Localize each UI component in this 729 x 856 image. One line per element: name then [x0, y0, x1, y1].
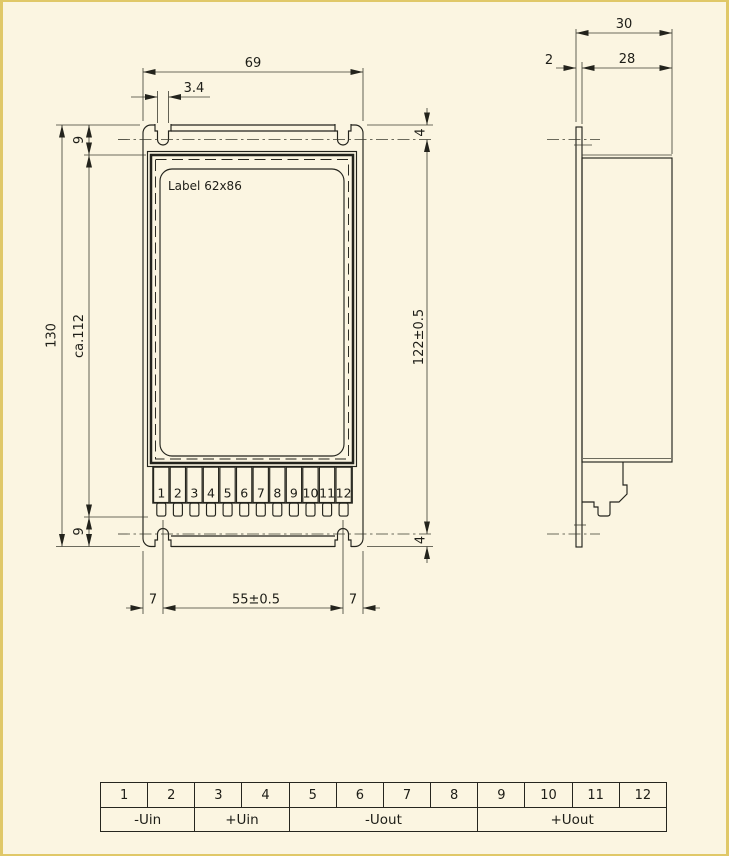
- page-background: [0, 0, 729, 856]
- terminal-number: 10: [303, 486, 319, 501]
- pin-number-row: 1 2 3 4 5 6 7 8 9 10 11 12: [101, 783, 667, 808]
- pin-number-cell: 8: [431, 783, 478, 808]
- terminal-number: 7: [257, 486, 265, 501]
- dim-slot-span-label: 122±0.5: [412, 309, 427, 365]
- terminal-number: 11: [319, 486, 335, 501]
- technical-drawing-page: Label 62x86 1 2 3 4 5 6 7 8 9 10: [0, 0, 729, 856]
- pin-group-uout-plus: +Uout: [478, 808, 667, 832]
- dim-slot-offset-bottom-label: 4: [414, 536, 429, 544]
- dim-margin-bottom-label: 9: [72, 527, 87, 535]
- dim-body-depth-label: 28: [619, 52, 636, 67]
- terminal-number: 3: [190, 486, 198, 501]
- pin-number-cell: 6: [336, 783, 383, 808]
- terminal-number: 2: [174, 486, 182, 501]
- dim-height-label: 130: [45, 323, 60, 348]
- pin-number-cell: 3: [195, 783, 242, 808]
- dim-slot-width-label: 3.4: [184, 81, 205, 96]
- pin-number-cell: 5: [289, 783, 336, 808]
- terminal-number: 1: [157, 486, 165, 501]
- dim-edge-left-label: 7: [149, 593, 157, 608]
- pin-number-cell: 9: [478, 783, 525, 808]
- dim-depth-total-label: 30: [616, 17, 633, 32]
- terminal-number: 4: [207, 486, 215, 501]
- dim-pitch-label: 55±0.5: [232, 593, 280, 608]
- pin-group-uin-plus: +Uin: [195, 808, 289, 832]
- pin-number-cell: 11: [572, 783, 619, 808]
- pin-number-cell: 2: [148, 783, 195, 808]
- mounting-slot-top-right: [335, 124, 351, 145]
- pin-number-cell: 7: [383, 783, 430, 808]
- dim-body-height-label: ca.112: [72, 314, 87, 358]
- dim-slot-offset-top-label: 4: [414, 128, 429, 136]
- dim-margin-top-label: 9: [72, 136, 87, 144]
- pin-number-cell: 10: [525, 783, 572, 808]
- pin-group-uin-minus: -Uin: [101, 808, 195, 832]
- pin-assignment-table: 1 2 3 4 5 6 7 8 9 10 11 12 -Uin +Uin -Uo…: [100, 782, 667, 832]
- terminal-number: 6: [240, 486, 248, 501]
- dim-width-label: 69: [245, 56, 262, 71]
- terminal-number: 9: [290, 486, 298, 501]
- terminal-number: 12: [336, 486, 352, 501]
- pin-group-row: -Uin +Uin -Uout +Uout: [101, 808, 667, 832]
- mounting-slot-top-left: [155, 124, 171, 145]
- terminal-number: 5: [224, 486, 232, 501]
- label-text: Label 62x86: [168, 179, 242, 193]
- pin-number-cell: 12: [619, 783, 666, 808]
- dim-panel-thickness-label: 2: [545, 53, 553, 68]
- pin-group-uout-minus: -Uout: [289, 808, 478, 832]
- terminal-number: 8: [273, 486, 281, 501]
- dimension-drawing: Label 62x86 1 2 3 4 5 6 7 8 9 10: [0, 0, 729, 856]
- dim-edge-right-label: 7: [349, 593, 357, 608]
- pin-number-cell: 1: [101, 783, 148, 808]
- pin-number-cell: 4: [242, 783, 289, 808]
